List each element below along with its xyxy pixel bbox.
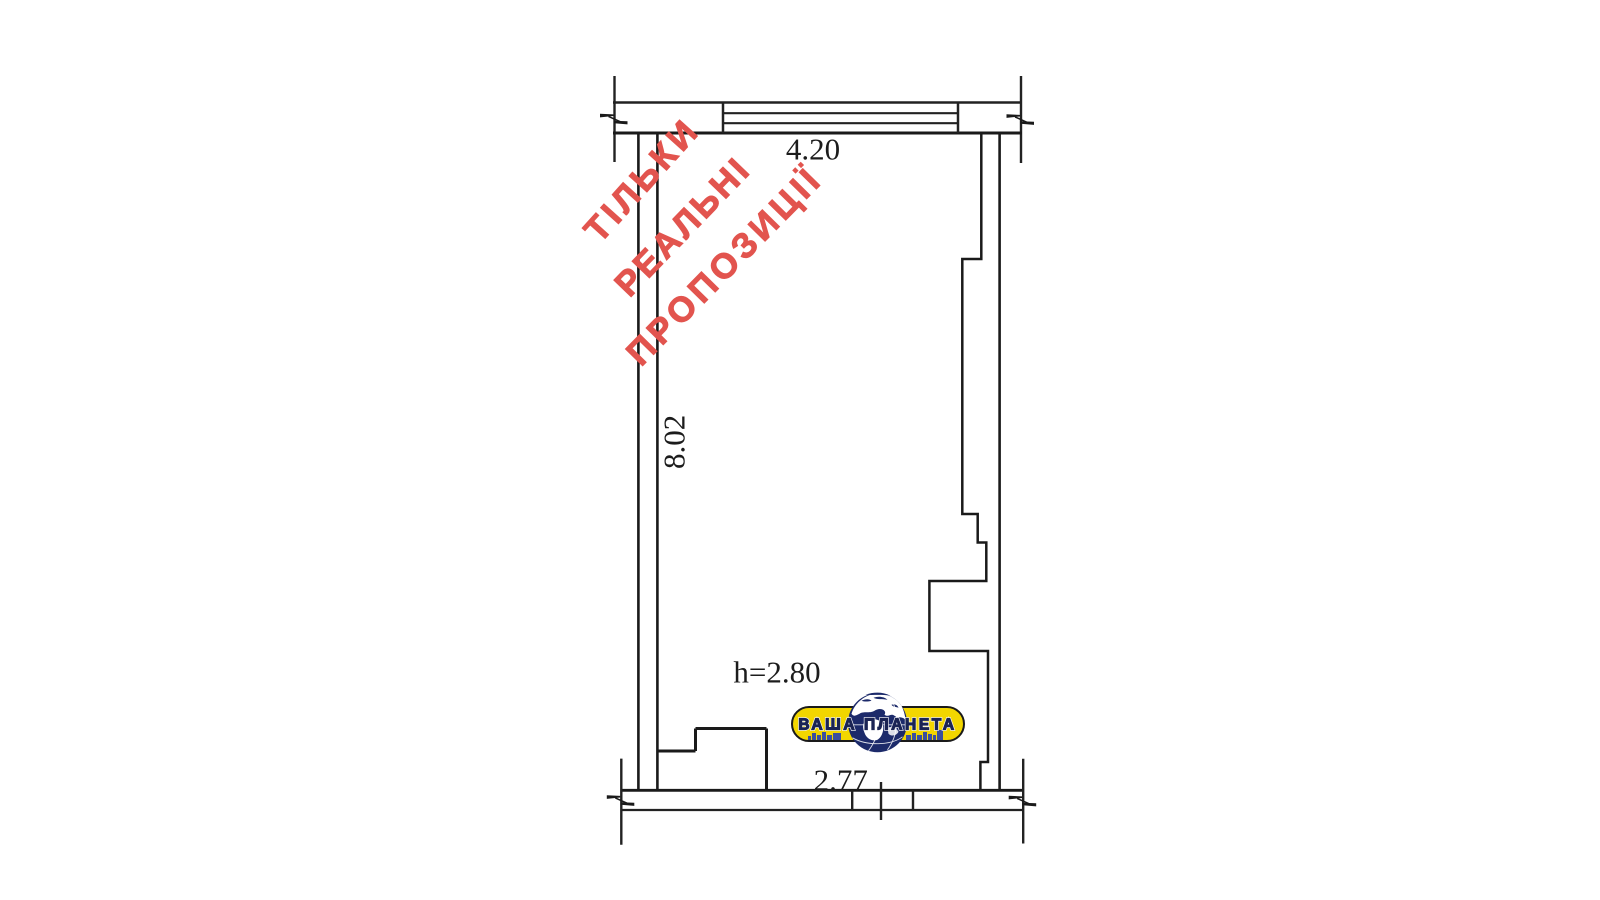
svg-text:8.02: 8.02 [657,415,692,469]
svg-text:h=2.80: h=2.80 [733,655,820,690]
svg-text:ВАША ПЛАНЕТА: ВАША ПЛАНЕТА [798,717,956,734]
svg-text:4.20: 4.20 [786,132,840,167]
svg-text:2.77: 2.77 [814,763,868,798]
